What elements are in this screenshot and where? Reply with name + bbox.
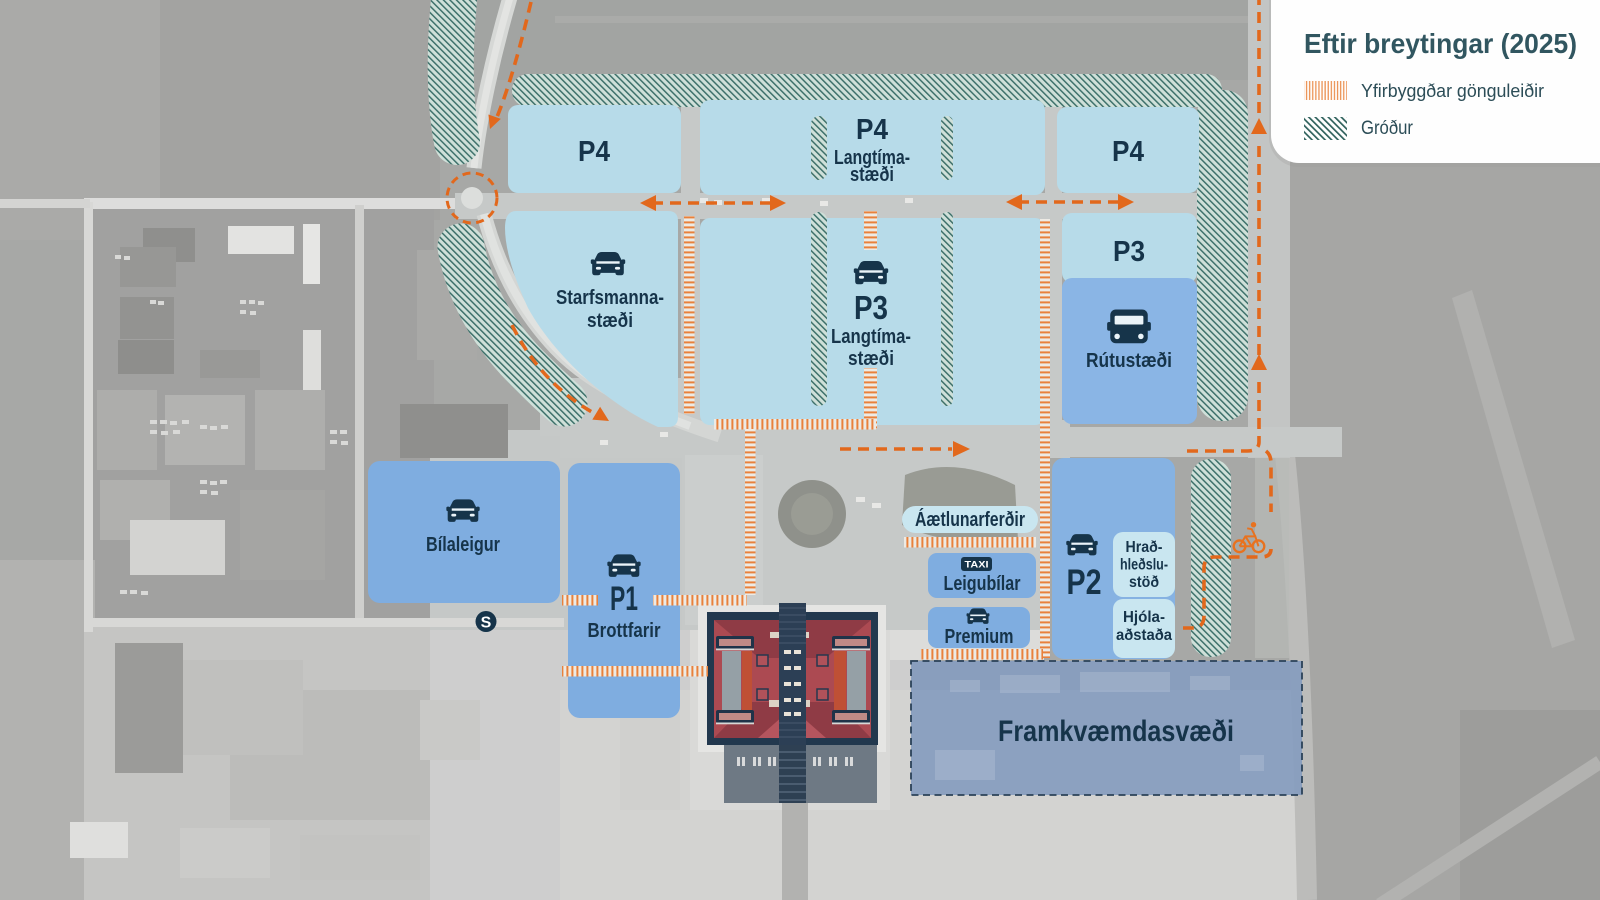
svg-text:P3: P3 <box>854 289 888 326</box>
svg-text:Áætlunarferðir: Áætlunarferðir <box>915 508 1025 531</box>
svg-text:Hjóla-: Hjóla- <box>1123 609 1165 626</box>
svg-text:Premium: Premium <box>945 626 1014 648</box>
svg-text:stæði: stæði <box>848 348 894 370</box>
svg-text:hleðslu-: hleðslu- <box>1120 557 1168 574</box>
svg-text:P3: P3 <box>1113 236 1145 268</box>
svg-text:aðstaða: aðstaða <box>1116 627 1172 644</box>
svg-text:Bílaleigur: Bílaleigur <box>426 533 500 556</box>
svg-text:P1: P1 <box>610 580 638 618</box>
svg-text:P4: P4 <box>856 114 888 146</box>
svg-text:P2: P2 <box>1067 563 1102 602</box>
svg-text:stöð: stöð <box>1129 574 1159 591</box>
svg-text:TAXI: TAXI <box>965 560 989 570</box>
svg-text:Brottfarir: Brottfarir <box>588 619 661 642</box>
svg-text:Yfirbyggðar gönguleiðir: Yfirbyggðar gönguleiðir <box>1361 80 1544 101</box>
svg-text:stæði: stæði <box>850 164 894 186</box>
svg-text:Eftir breytingar (2025): Eftir breytingar (2025) <box>1304 28 1577 59</box>
svg-text:Leigubílar: Leigubílar <box>944 573 1021 595</box>
svg-text:Langtíma-: Langtíma- <box>831 326 911 348</box>
svg-text:Starfsmanna-: Starfsmanna- <box>556 287 664 309</box>
svg-text:P4: P4 <box>1112 136 1144 168</box>
svg-text:Framkvæmdasvæði: Framkvæmdasvæði <box>998 715 1234 748</box>
svg-text:stæði: stæði <box>587 310 633 332</box>
svg-text:S: S <box>481 615 492 632</box>
svg-text:P4: P4 <box>578 136 610 168</box>
svg-text:Gróður: Gróður <box>1361 118 1414 139</box>
svg-text:Hrað-: Hrað- <box>1126 539 1163 556</box>
svg-text:Rútustæði: Rútustæði <box>1086 350 1172 372</box>
